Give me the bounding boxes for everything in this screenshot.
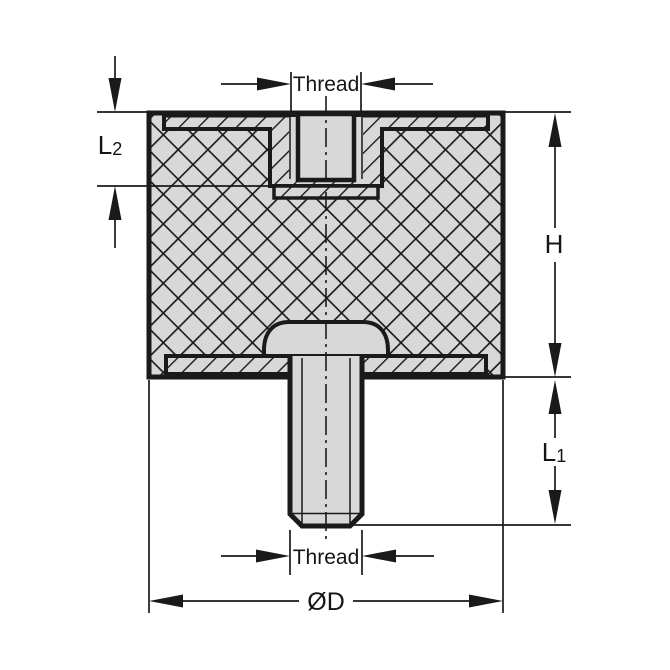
- label-l1-main: L: [542, 437, 556, 467]
- arrowhead-icon: [549, 343, 562, 377]
- label-l2-sub: 2: [112, 139, 122, 159]
- label-diameter: ØD: [307, 588, 345, 616]
- label-thread-bottom: Thread: [293, 546, 360, 569]
- arrowhead-icon: [361, 78, 395, 91]
- label-l2: L2: [98, 130, 122, 160]
- arrowhead-icon: [109, 78, 122, 112]
- vibration-mount-section-drawing: Thread L2 H L1 Thread: [0, 0, 670, 670]
- arrowhead-icon: [109, 186, 122, 220]
- arrowhead-icon: [549, 490, 562, 524]
- dim-l2: L2: [97, 56, 150, 248]
- dim-h: H: [505, 112, 571, 377]
- arrowhead-icon: [549, 113, 562, 147]
- arrowhead-icon: [257, 78, 291, 91]
- label-l2-main: L: [98, 130, 112, 160]
- dim-l1: L1: [352, 380, 571, 525]
- arrowhead-icon: [362, 550, 396, 563]
- label-l1: L1: [542, 437, 566, 467]
- arrowhead-icon: [256, 550, 290, 563]
- label-h: H: [545, 229, 564, 259]
- label-l1-sub: 1: [556, 446, 566, 466]
- dim-thread-bottom: Thread: [221, 530, 434, 575]
- arrowhead-icon: [549, 380, 562, 414]
- mount-body-group: [97, 113, 503, 526]
- label-thread-top: Thread: [293, 73, 360, 96]
- technical-drawing-page: Thread L2 H L1 Thread: [0, 0, 670, 670]
- arrowhead-icon: [469, 595, 503, 608]
- arrowhead-icon: [149, 595, 183, 608]
- dim-thread-top: Thread: [221, 72, 433, 112]
